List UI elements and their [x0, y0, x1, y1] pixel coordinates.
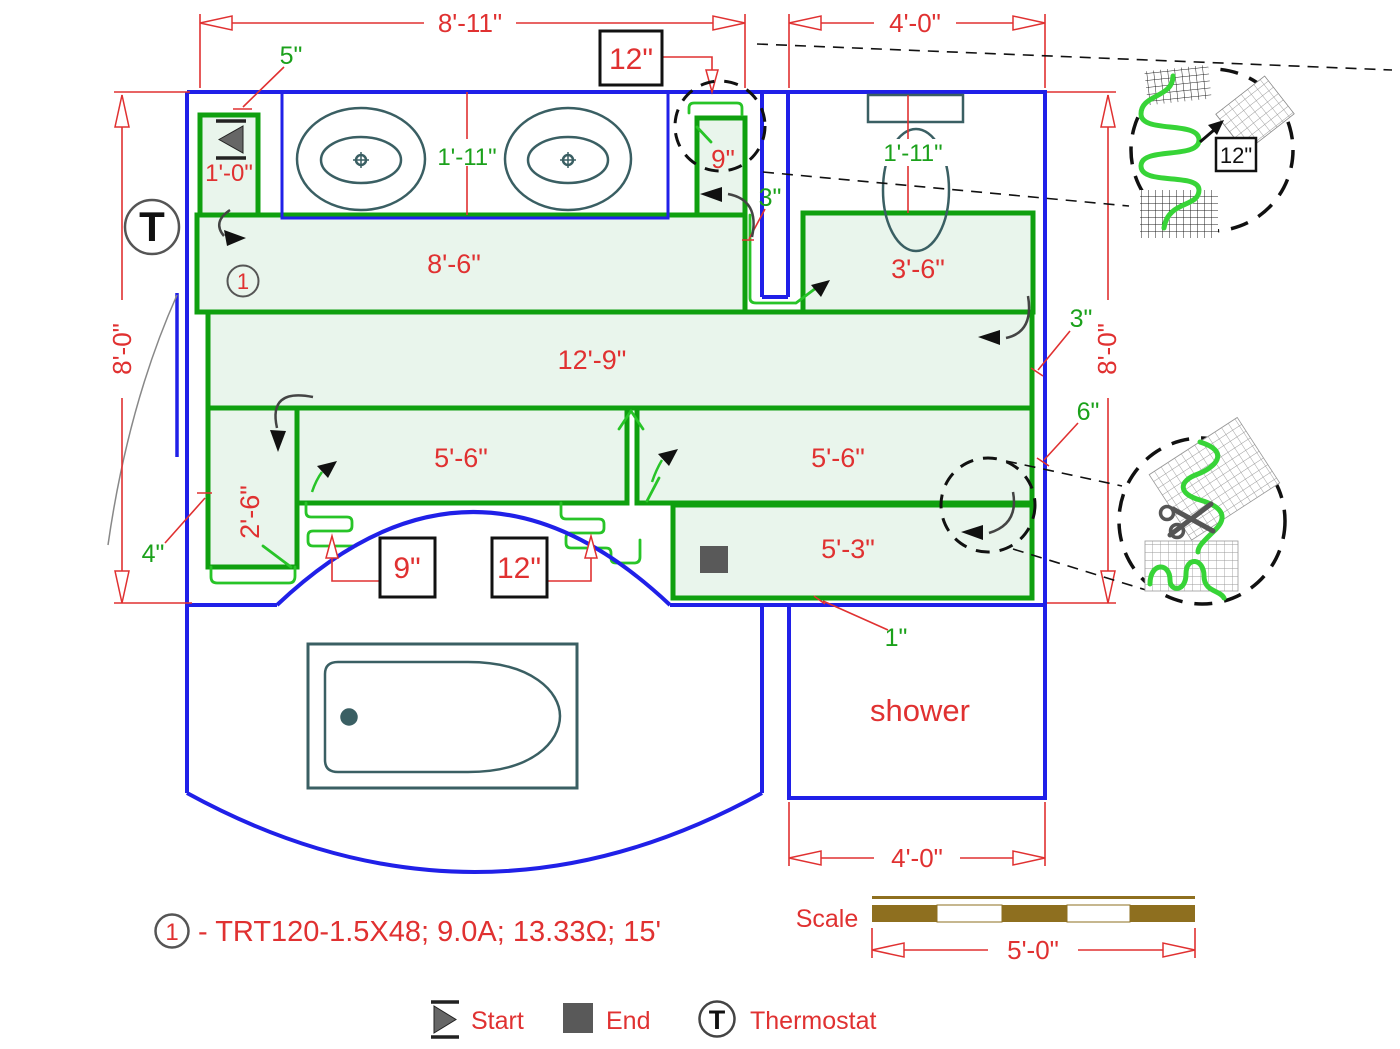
offset-stub-gap: 3": [759, 184, 782, 212]
thermostat-plan: T: [125, 200, 179, 254]
dim-right-height: 8'-0": [1092, 323, 1122, 375]
legend-start-label: Start: [471, 1007, 524, 1035]
spacing-12-label: 12": [497, 552, 541, 585]
detail-circle-top: 12": [1131, 65, 1294, 238]
floor-arc-lower: [187, 793, 762, 872]
dim-scale-length: 5'-0": [1007, 935, 1059, 965]
offset-vanity-gap: 5": [280, 42, 303, 70]
label-lower-left-mat: 5'-6": [434, 443, 488, 473]
dim-shower-width: 4'-0": [891, 843, 943, 873]
spacing-top-label: 12": [609, 43, 653, 76]
floorplan-canvas: 12" T: [0, 0, 1400, 1049]
room-shower-label: shower: [870, 693, 970, 728]
label-start-strip: 1'-0": [205, 160, 253, 187]
offset-wall-gap: 4": [142, 540, 165, 568]
offset-toilet-centerline: 1'-11": [883, 140, 942, 167]
end-marker-plan: [700, 546, 728, 573]
label-lower-right-mat: 5'-6": [811, 443, 865, 473]
label-9in-strip: 9": [711, 144, 735, 174]
label-bottom-mat: 5'-3": [821, 534, 875, 564]
offset-right-gap-mid: 6": [1077, 398, 1100, 426]
label-top-band: 8'-6": [427, 249, 481, 279]
label-left-strip: 2'-6": [235, 485, 265, 539]
thermostat-icon: T: [700, 1002, 735, 1037]
scale-label: Scale: [796, 905, 859, 933]
note-number: 1: [165, 919, 178, 946]
bathtub: [308, 644, 577, 788]
spacing-9-label: 9": [393, 552, 420, 585]
sink-left: [297, 108, 425, 210]
tub-drain: [342, 710, 357, 725]
mesh-patch: [1140, 190, 1218, 238]
label-middle-band: 12'-9": [558, 345, 627, 375]
offset-bottom-gap: 1": [885, 624, 908, 652]
legend-end-label: End: [606, 1007, 650, 1035]
label-right-top-mat: 3'-6": [891, 254, 945, 284]
detail-spacing-label: 12": [1220, 143, 1252, 168]
dim-toilet-width: 4'-0": [889, 8, 941, 38]
cable-wiggle-right: [561, 503, 640, 563]
legend: Start End T Thermostat: [431, 1002, 876, 1038]
dim-top-width: 8'-11": [438, 8, 502, 38]
detail-circle-bottom: [1119, 417, 1285, 604]
scale-bar: Scale: [796, 896, 1195, 933]
offset-sink-centerline: 1'-11": [437, 144, 496, 171]
svg-text:T: T: [139, 203, 165, 250]
floor-plan-page: 12" T: [0, 0, 1400, 1049]
note-text: - TRT120-1.5X48; 9.0A; 13.33Ω; 15': [198, 916, 661, 948]
sink-right: [505, 108, 631, 210]
offset-right-gap-top: 3": [1070, 305, 1093, 333]
end-icon: [563, 1003, 593, 1033]
svg-text:1: 1: [237, 269, 249, 294]
svg-text:T: T: [709, 1005, 726, 1035]
mat-note: 1 - TRT120-1.5X48; 9.0A; 13.33Ω; 15': [156, 915, 662, 949]
dim-left-height: 8'-0": [107, 323, 137, 375]
legend-thermostat-label: Thermostat: [750, 1007, 876, 1035]
start-icon: [431, 1002, 459, 1037]
